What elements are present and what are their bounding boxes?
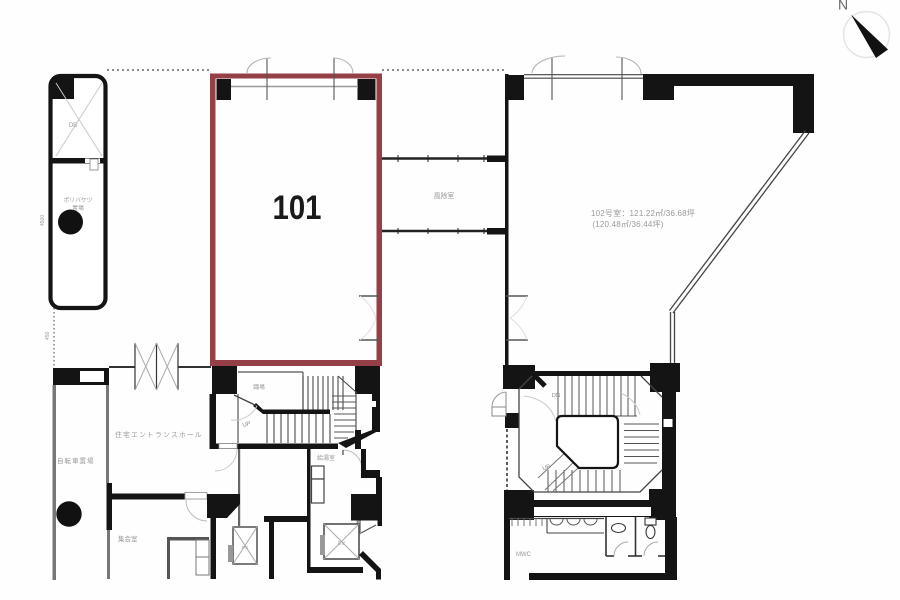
svg-text:DB: DB xyxy=(69,123,77,129)
svg-text:MWC: MWC xyxy=(516,552,532,558)
svg-text:450: 450 xyxy=(45,331,51,340)
svg-text:(120.48㎡/36.44坪): (120.48㎡/36.44坪) xyxy=(592,220,663,229)
svg-text:EV: EV xyxy=(338,541,345,547)
svg-text:集会室: 集会室 xyxy=(118,534,138,543)
svg-text:102号室：121.22㎡/36.68坪: 102号室：121.22㎡/36.68坪 xyxy=(591,208,695,218)
svg-text:PS: PS xyxy=(242,545,248,550)
svg-text:風除室: 風除室 xyxy=(434,191,455,200)
svg-text:101: 101 xyxy=(273,189,322,227)
svg-text:自転車置場: 自転車置場 xyxy=(57,456,95,465)
svg-text:N: N xyxy=(838,0,848,13)
svg-text:給湯室: 給湯室 xyxy=(317,454,335,462)
svg-text:4500: 4500 xyxy=(40,215,46,226)
svg-text:住宅エントランスホール: 住宅エントランスホール xyxy=(115,430,203,439)
svg-text:踊場: 踊場 xyxy=(253,383,265,391)
svg-text:DN: DN xyxy=(552,393,560,399)
svg-text:ポリバケツ: ポリバケツ xyxy=(64,196,93,204)
